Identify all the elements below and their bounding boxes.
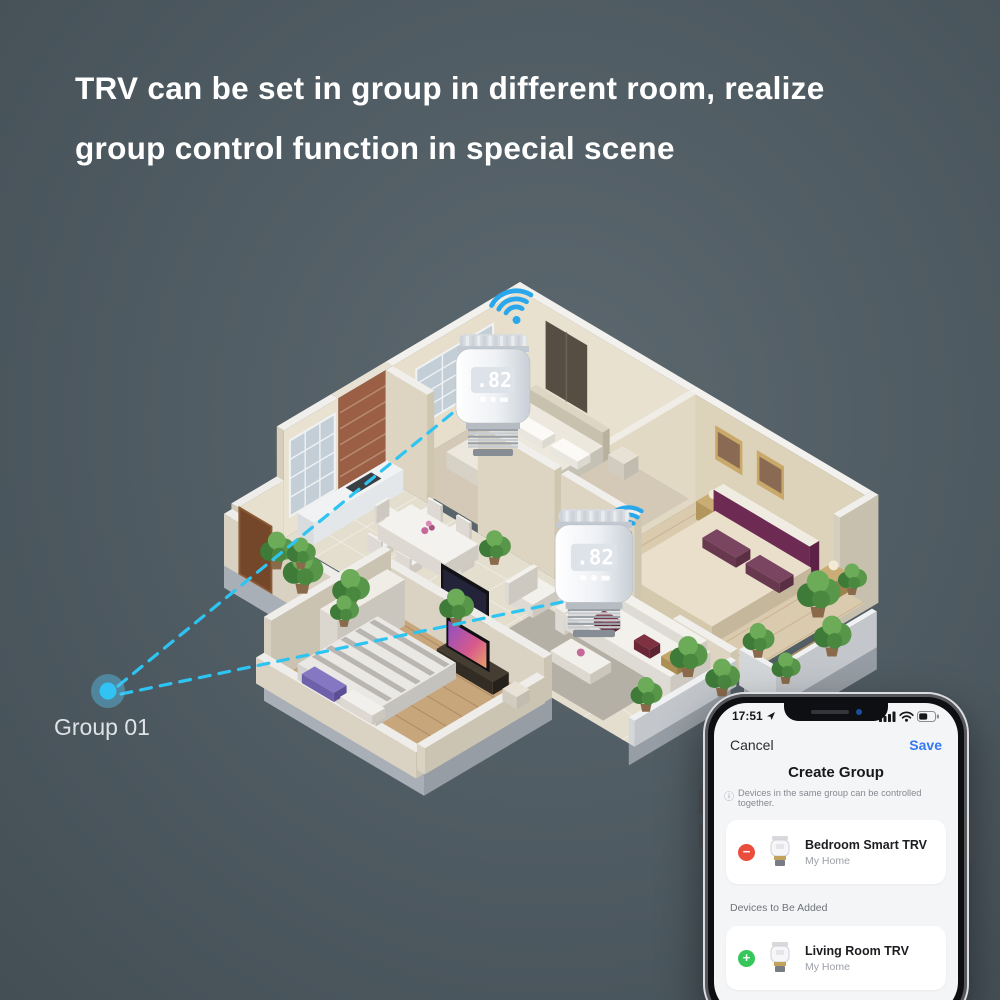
minus-circle-icon[interactable]: −: [738, 844, 755, 861]
device-name: Bedroom Smart TRV: [805, 838, 927, 852]
save-button[interactable]: Save: [909, 737, 942, 753]
power-button[interactable]: [969, 814, 973, 860]
camera-icon: [856, 709, 862, 715]
phone-mockup: 17:51: [703, 692, 969, 1000]
device-card-bedroom-trv[interactable]: − Bedroom Smart TRV My Home: [726, 820, 946, 884]
phone-notch: [784, 703, 888, 721]
trv-thumbnail: [765, 835, 795, 869]
nav-row: Cancel Save: [714, 723, 958, 753]
page-title-line1: TRV can be set in group in different roo…: [75, 58, 955, 118]
device-home: My Home: [805, 961, 909, 973]
svg-text:.82: .82: [576, 546, 614, 570]
device-home: My Home: [805, 855, 927, 867]
wifi-icon: [899, 711, 914, 722]
device-card-livingroom-trv[interactable]: + Living Room TRV My Home: [726, 926, 946, 990]
page-title-line2: group control function in special scene: [75, 118, 955, 178]
plus-circle-icon[interactable]: +: [738, 950, 755, 967]
svg-text:.82: .82: [476, 368, 512, 392]
group-note: ⓘ Devices in the same group can be contr…: [714, 788, 958, 808]
trv-display-icons: [580, 575, 609, 581]
promo-page: TRV can be set in group in different roo…: [0, 0, 1000, 1000]
trv-display-icons: [480, 397, 508, 403]
page-title: TRV can be set in group in different roo…: [75, 58, 955, 178]
device-name: Living Room TRV: [805, 944, 909, 958]
cancel-button[interactable]: Cancel: [730, 737, 774, 753]
group-note-text: Devices in the same group can be control…: [738, 788, 948, 808]
group-label: Group 01: [54, 714, 150, 741]
speaker-icon: [811, 710, 849, 714]
trv-thumbnail: [765, 941, 795, 975]
group-dot: [91, 674, 125, 708]
volume-down-button[interactable]: [699, 824, 703, 848]
screen-title: Create Group: [714, 764, 958, 781]
section-label: Devices to Be Added: [730, 902, 942, 914]
status-time-text: 17:51: [732, 709, 763, 723]
info-icon: ⓘ: [724, 793, 734, 803]
status-time: 17:51: [732, 709, 776, 723]
battery-icon: [917, 711, 940, 722]
phone-screen: 17:51: [714, 703, 958, 1000]
location-arrow-icon: [766, 711, 776, 721]
volume-up-button[interactable]: [699, 790, 703, 814]
